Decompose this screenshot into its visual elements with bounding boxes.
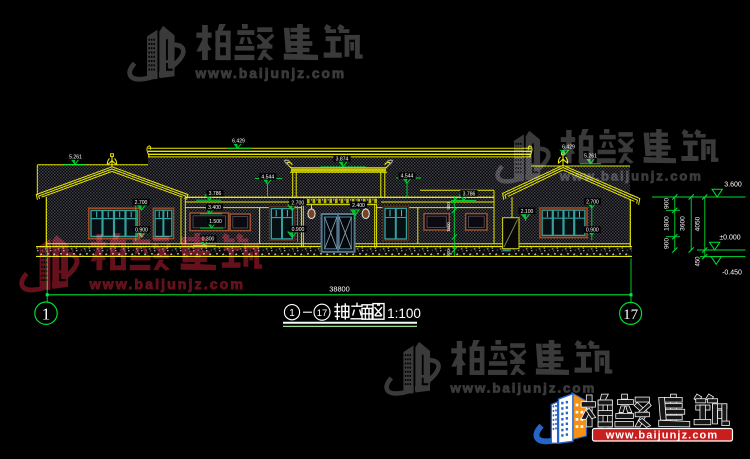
svg-text:2.700: 2.700	[135, 200, 148, 206]
svg-text:4.544: 4.544	[261, 174, 274, 180]
svg-text:1: 1	[42, 304, 51, 323]
svg-text:2.100: 2.100	[521, 209, 534, 215]
svg-text:1:100: 1:100	[387, 306, 421, 321]
svg-text:3.400: 3.400	[208, 205, 221, 211]
svg-text:450: 450	[696, 256, 702, 267]
svg-text:3600: 3600	[680, 216, 687, 231]
svg-text:4050: 4050	[695, 216, 702, 231]
svg-text:900: 900	[663, 238, 670, 249]
svg-text:0.900: 0.900	[292, 227, 305, 233]
svg-text:2.700: 2.700	[586, 199, 599, 205]
svg-text:900: 900	[446, 249, 451, 257]
svg-text:900: 900	[663, 198, 670, 209]
svg-text:38800: 38800	[329, 285, 350, 294]
svg-text:2.700: 2.700	[291, 200, 304, 206]
svg-text:4.544: 4.544	[401, 174, 414, 180]
svg-text:1800: 1800	[663, 216, 670, 231]
svg-text:900: 900	[446, 202, 451, 210]
svg-text:3.786: 3.786	[463, 191, 476, 197]
svg-text:3.874: 3.874	[336, 156, 349, 162]
svg-text:1.500: 1.500	[209, 219, 222, 225]
svg-text:17: 17	[623, 307, 639, 323]
svg-text:-0.450: -0.450	[722, 270, 742, 277]
svg-text:3.600: 3.600	[724, 181, 742, 188]
svg-text:www.baijunjz.com: www.baijunjz.com	[605, 429, 719, 441]
svg-text:1: 1	[289, 308, 295, 319]
svg-text:0.900: 0.900	[586, 228, 599, 234]
svg-text:1800: 1800	[446, 222, 451, 232]
svg-text:±0.000: ±0.000	[719, 234, 740, 241]
svg-text:17: 17	[317, 308, 328, 319]
svg-text:3.786: 3.786	[209, 191, 222, 197]
svg-text:0.900: 0.900	[135, 227, 148, 233]
svg-text:5.261: 5.261	[69, 155, 82, 161]
svg-text:2.400: 2.400	[352, 203, 365, 209]
svg-text:6.429: 6.429	[232, 139, 245, 145]
